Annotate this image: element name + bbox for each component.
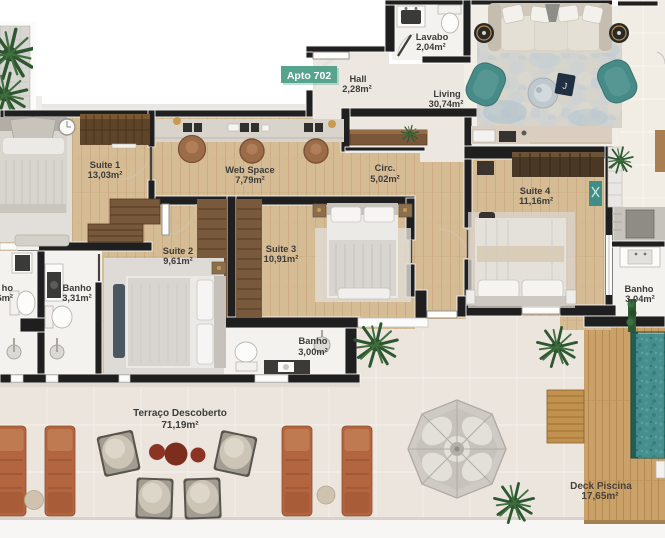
svg-text:Suite 4: Suite 4 [520, 186, 551, 196]
svg-text:Banho: Banho [63, 283, 92, 293]
svg-text:Living: Living [433, 89, 461, 99]
svg-text:Terraço Descoberto: Terraço Descoberto [133, 408, 227, 419]
svg-text:2,28m²: 2,28m² [342, 84, 371, 94]
svg-text:Suite 3: Suite 3 [266, 244, 296, 254]
svg-text:Suite 2: Suite 2 [163, 246, 193, 256]
svg-text:Hall: Hall [349, 74, 366, 84]
svg-text:3,31m²: 3,31m² [62, 293, 91, 303]
svg-text:13,03m²: 13,03m² [88, 170, 123, 180]
svg-text:17,65m²: 17,65m² [581, 491, 619, 502]
svg-text:6m²: 6m² [0, 293, 13, 303]
svg-text:3,00m²: 3,00m² [298, 347, 327, 357]
svg-text:10,91m²: 10,91m² [264, 254, 299, 264]
svg-text:Circ.: Circ. [375, 163, 396, 173]
svg-text:30,74m²: 30,74m² [429, 99, 464, 109]
svg-text:Banho: Banho [625, 284, 654, 294]
svg-text:7,79m²: 7,79m² [235, 175, 264, 185]
svg-text:Suite 1: Suite 1 [90, 160, 120, 170]
svg-text:2,04m²: 2,04m² [416, 42, 445, 52]
svg-text:11,16m²: 11,16m² [519, 196, 553, 206]
svg-text:3,04m²: 3,04m² [625, 294, 654, 304]
svg-text:5,02m²: 5,02m² [370, 174, 399, 184]
svg-text:Banho: Banho [299, 336, 328, 346]
svg-text:Web Space: Web Space [225, 165, 274, 175]
svg-text:ho: ho [2, 283, 14, 293]
svg-text:9,61m²: 9,61m² [163, 256, 192, 266]
svg-text:Lavabo: Lavabo [416, 32, 449, 42]
svg-text:Apto 702: Apto 702 [287, 70, 332, 82]
svg-text:71,19m²: 71,19m² [161, 420, 199, 431]
